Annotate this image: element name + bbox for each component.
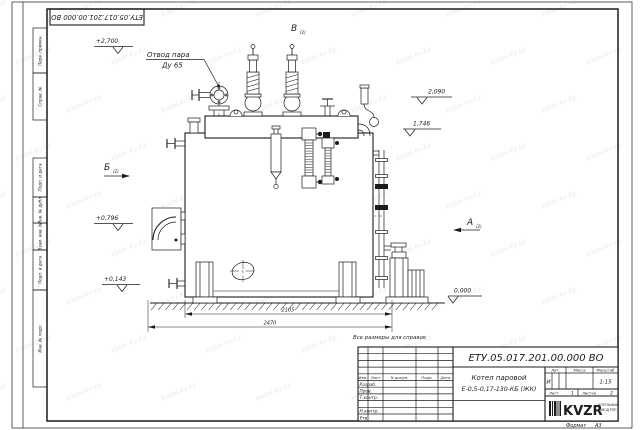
stamp-col-ndoc: N докум. (391, 375, 409, 380)
svg-text:(2): (2) (300, 30, 306, 35)
ground-hatch (151, 303, 438, 310)
corner-doc-box: ЕТУ.05.017.201.00.000 ВО (50, 9, 144, 25)
drawing-sheet: kotel-kv.kzkotel-kv.kzkotel-kv.kzkotel-k… (0, 0, 644, 430)
margin-sprav: Справ. № (38, 86, 43, 107)
elevation-2090: 2,090 (411, 89, 452, 105)
stamp-row-nkontr: Н.контр. (360, 409, 379, 415)
left-valve-top (167, 138, 185, 149)
svg-text:0,000: 0,000 (454, 288, 471, 295)
drum-valve (320, 99, 335, 116)
ground (150, 303, 445, 310)
margin-inv-dubl: Инв. № дубл. (38, 196, 43, 224)
stamp-massa-label: Масса (573, 368, 586, 373)
stamp-lit-value: И (546, 380, 550, 386)
svg-text:А: А (466, 218, 473, 228)
stamp-col-podp: Подп. (421, 375, 433, 380)
stamp-listov-no: 2 (610, 391, 613, 397)
stamp-listov-label: Листов (581, 391, 597, 396)
svg-text:(2): (2) (113, 169, 119, 174)
stamp-row-utv: Утв. (360, 415, 369, 421)
stamp-masshtab-label: Масштаб (596, 368, 615, 373)
stamp-lit-label: Лит. (550, 368, 560, 373)
format-word: Формат (566, 423, 587, 429)
view-label-a: А (2) (453, 218, 482, 232)
format-label: Формат А3 (566, 423, 602, 429)
boiler-drawing (152, 45, 428, 304)
margin-podp2: Подп. и дата (38, 256, 43, 284)
margin-vzam: Взам. инв. № (38, 222, 43, 251)
svg-text:(2): (2) (476, 224, 482, 229)
steam-outlet-label-1: Отвод пара (147, 51, 190, 59)
pump-unit (384, 243, 428, 303)
dim-2470: 2470 (264, 321, 277, 327)
title-block: ЕТУ.05.017.201.00.000 ВО Котел паровой Е… (358, 347, 619, 421)
elevation-2700: +2,700 (94, 38, 133, 54)
elevation-0143: +0,143 (102, 276, 140, 292)
view-label-v: В (2) (291, 24, 306, 35)
stamp-row-prov: Пров. (360, 389, 373, 395)
view-label-b: Б (2) (104, 163, 130, 178)
margin-fields: Перв. примен. Справ. № Подп. и дата Инв.… (33, 28, 47, 387)
stamp-row-razrab: Разраб. (360, 382, 377, 388)
steam-outlet-valve (192, 86, 229, 116)
siphon-tube (358, 85, 379, 136)
safety-valve-1 (244, 45, 262, 117)
elevation-0796: +0,796 (94, 215, 133, 231)
svg-text:1,746: 1,746 (413, 121, 430, 128)
svg-text:В: В (291, 24, 297, 34)
stamp-list-no: 1 (571, 391, 574, 397)
left-valve-drain (169, 278, 185, 289)
kvzr-logo-sub2: ЗАВОД РЭП (598, 408, 617, 412)
kvzr-logo-sub1: КОТЕЛЬНЫЙ (598, 402, 619, 407)
svg-text:+0,143: +0,143 (104, 276, 126, 283)
kvzr-logo-text: KVZR (563, 404, 603, 419)
stamp-title-2: Е-0,5-0,17-130-КБ (ЖК) (462, 386, 537, 393)
stamp-col-izm: Изм. (359, 375, 368, 380)
reference-note: Все размеры для справок (353, 335, 427, 341)
stamp-col-list: Лист (370, 375, 381, 380)
stamp-list-label: Лист (548, 391, 559, 396)
safety-valve-2 (283, 45, 301, 117)
elevation-0000: 0,000 (448, 288, 482, 304)
stamp-col-data: Дата (440, 375, 452, 380)
margin-podp1: Подп. и дата (38, 163, 43, 191)
elevation-1746: 1,746 (403, 121, 441, 137)
steam-outlet-label-2: Ду 65 (161, 62, 183, 70)
burner-panel (152, 208, 185, 250)
svg-text:+0,796: +0,796 (96, 215, 118, 222)
svg-text:+2,700: +2,700 (96, 38, 118, 45)
margin-perv: Перв. примен. (38, 35, 43, 66)
stamp-title-1: Котел паровой (472, 374, 527, 382)
stamp-scale-value: 1:15 (599, 380, 612, 386)
svg-text:2,090: 2,090 (428, 89, 445, 96)
margin-inv-podl: Инв. № подл. (38, 324, 43, 352)
drawing-canvas: Перв. примен. Справ. № Подп. и дата Инв.… (0, 0, 644, 430)
dim-2105: 2105 (282, 308, 295, 314)
stamp-doc-number: ЕТУ.05.017.201.00.000 ВО (468, 353, 603, 364)
svg-text:Б: Б (104, 163, 110, 173)
format-value: А3 (594, 423, 602, 429)
corner-doc-number: ЕТУ.05.017.201.00.000 ВО (50, 13, 142, 21)
stamp-row-tkontr: Т.контр. (360, 395, 379, 401)
downcomer-pipe (373, 150, 388, 288)
steam-drum (205, 116, 358, 138)
